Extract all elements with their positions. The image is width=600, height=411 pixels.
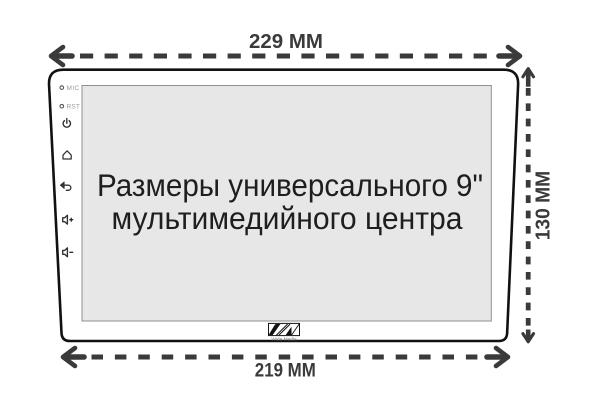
svg-text:Wide Media: Wide Media bbox=[271, 337, 297, 343]
svg-text:219 ММ: 219 ММ bbox=[255, 360, 316, 381]
svg-text:мультимедийного центра: мультимедийного центра bbox=[112, 200, 463, 236]
svg-text:Размеры универсального 9": Размеры универсального 9" bbox=[97, 167, 483, 203]
svg-text:MIC: MIC bbox=[67, 85, 80, 92]
svg-text:229 ММ: 229 ММ bbox=[249, 30, 323, 53]
svg-text:130 ММ: 130 ММ bbox=[533, 171, 555, 241]
svg-text:RST: RST bbox=[67, 104, 81, 111]
